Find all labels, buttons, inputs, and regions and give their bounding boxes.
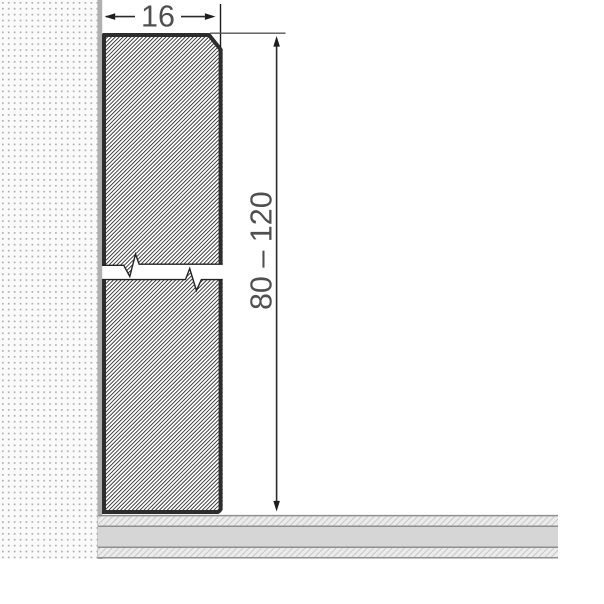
svg-text:80 – 120: 80 – 120 [245, 191, 279, 310]
svg-text:16: 16 [141, 0, 175, 33]
